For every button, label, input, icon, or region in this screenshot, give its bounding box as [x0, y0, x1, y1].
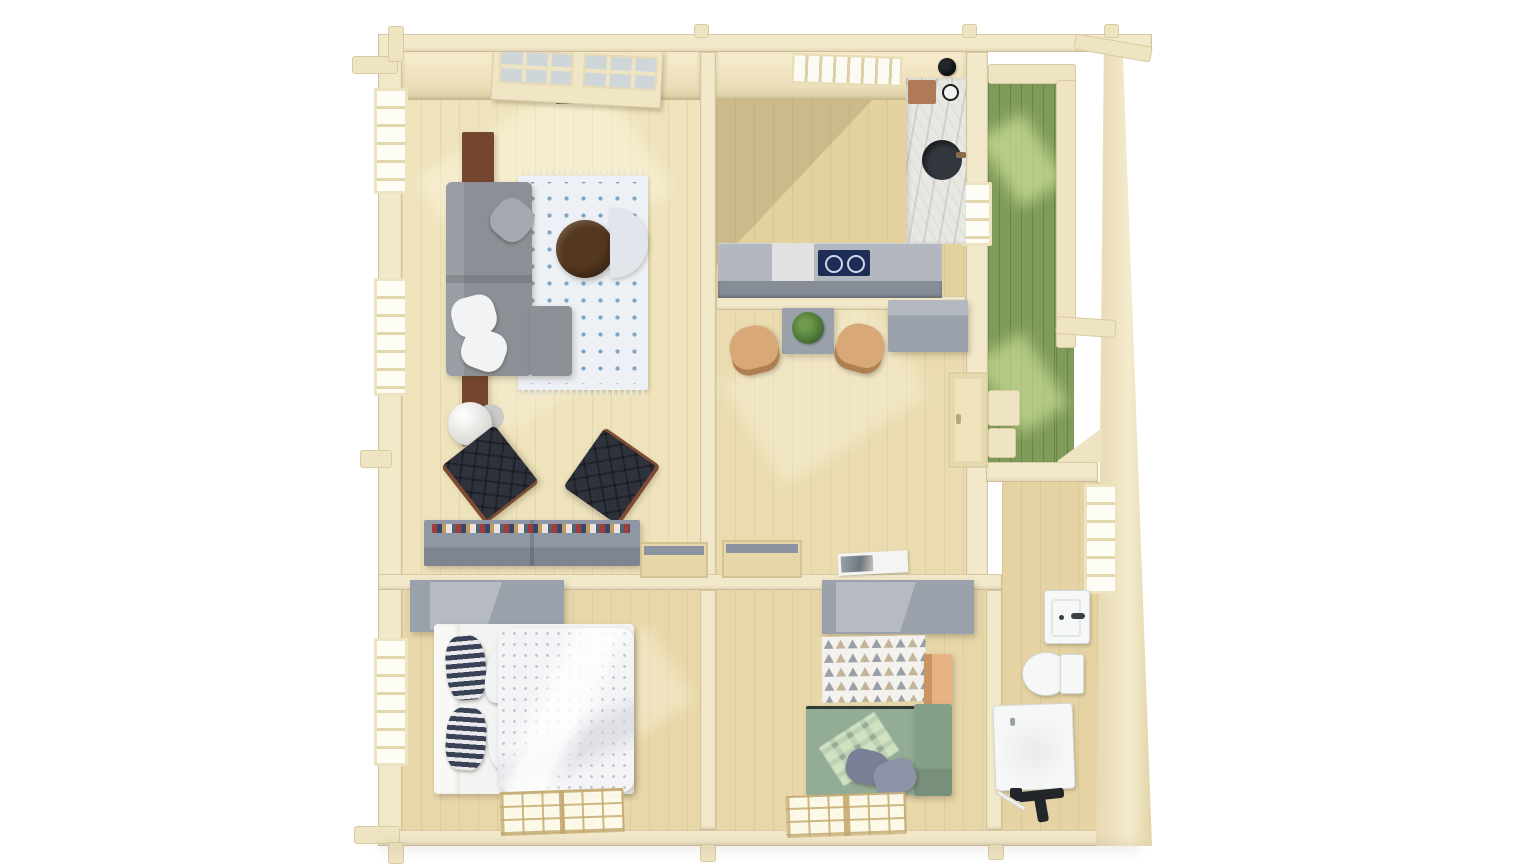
living-window-lower: [374, 278, 408, 396]
sideboard-bench: [424, 520, 640, 566]
triangle-rug: [821, 635, 926, 703]
wall-terrace-bathroom: [986, 462, 1098, 482]
window-light-patch: [499, 788, 624, 836]
living-window-upper: [374, 88, 408, 194]
basin-faucet: [1071, 613, 1085, 619]
french-door-pane: [498, 49, 574, 87]
terrace-step: [988, 390, 1020, 426]
threshold-mat: [644, 546, 704, 555]
log-end: [1104, 24, 1119, 38]
hall-cabinet: [888, 300, 968, 352]
coffee-table-round: [556, 220, 614, 278]
rug-fringe: [522, 170, 644, 176]
cabin-top-down-render: [0, 0, 1536, 864]
terrace-step: [988, 428, 1016, 458]
daybed-arm: [914, 704, 952, 796]
log-end: [360, 450, 392, 468]
terrace-deck-lower: [1056, 346, 1074, 462]
magazine: [837, 550, 908, 576]
basin-drain: [1059, 615, 1064, 620]
bowl: [942, 84, 959, 101]
bathroom-window: [1084, 484, 1118, 594]
washbasin: [1044, 590, 1090, 644]
toilet-tank: [1060, 654, 1084, 694]
striped-pillow: [444, 707, 488, 772]
window-light-patch: [785, 792, 906, 838]
burner: [847, 255, 865, 273]
french-door-pane: [582, 53, 658, 91]
outer-wall-right-slab: [1096, 52, 1152, 846]
log-end: [962, 24, 977, 38]
orange-cabinet: [924, 654, 952, 704]
bedroom1-window: [374, 638, 408, 766]
wall-bedroom1-bedroom2: [700, 590, 716, 830]
door-threshold: [722, 540, 802, 578]
shower-drain: [1010, 718, 1015, 726]
cooktop: [818, 250, 870, 276]
magazine-photo: [841, 555, 874, 573]
log-end: [694, 24, 709, 38]
kitchen-counter-front: [718, 281, 942, 298]
sofa-chaise: [530, 306, 572, 376]
rug-fringe: [522, 390, 644, 396]
burner: [825, 255, 843, 273]
books-row: [432, 524, 630, 533]
wall-hall-terrace: [966, 52, 988, 578]
wardrobe-front-panel: [430, 582, 502, 630]
kitchen-faucet: [956, 152, 966, 158]
kitchen-roof-vent-grille: [792, 53, 903, 87]
threshold-mat: [726, 544, 798, 553]
door-handle: [956, 414, 961, 424]
cutting-board: [908, 80, 936, 104]
duvet: [498, 628, 634, 792]
wardrobe-front-panel: [836, 582, 916, 632]
ground-shadow: [380, 842, 1140, 852]
deck-frame-right: [1056, 80, 1076, 348]
kitchen-terrace-window: [962, 182, 992, 246]
log-end: [388, 26, 404, 62]
potted-plant: [792, 312, 824, 344]
kitchen-sink-round: [922, 140, 962, 180]
door-threshold: [640, 542, 708, 578]
terrace-door: [948, 372, 988, 468]
kitchen-counter-white-section: [772, 243, 814, 281]
kettle: [938, 58, 956, 76]
wall-living-kitchen: [700, 52, 716, 578]
wardrobe: [822, 580, 974, 634]
shower-tray: [993, 703, 1076, 792]
outer-wall-top: [386, 34, 1152, 52]
